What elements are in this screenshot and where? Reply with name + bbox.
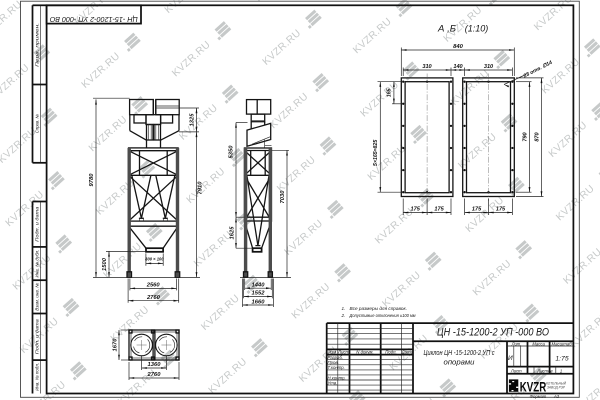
svg-text:Т.контр.: Т.контр. <box>328 365 345 370</box>
svg-text:1360: 1360 <box>148 362 162 368</box>
svg-text:140: 140 <box>453 64 463 70</box>
svg-text:Циклон ЦН -15-1200-2 УП с: Циклон ЦН -15-1200-2 УП с <box>424 348 495 357</box>
svg-text:KVZR: KVZR <box>520 379 547 394</box>
svg-text:5350: 5350 <box>229 145 235 159</box>
svg-text:1625: 1625 <box>230 226 236 240</box>
svg-text:Лит.: Лит. <box>511 341 522 346</box>
svg-text:Изм: Изм <box>328 349 336 354</box>
svg-text:175: 175 <box>472 207 482 213</box>
svg-text:(1:10): (1:10) <box>465 24 489 34</box>
svg-text:А3: А3 <box>553 394 560 399</box>
svg-text:Утв.: Утв. <box>328 381 338 386</box>
svg-text:1500: 1500 <box>102 257 108 271</box>
svg-text:1325: 1325 <box>189 113 195 127</box>
svg-text:165: 165 <box>387 88 393 97</box>
svg-text:310: 310 <box>422 64 432 70</box>
svg-text:Масса: Масса <box>532 341 545 346</box>
svg-text:1.: 1. <box>342 306 346 311</box>
svg-text:А ,Б: А ,Б <box>437 24 456 35</box>
svg-text:Справ. №: Справ. № <box>35 114 40 133</box>
svg-text:Подп. и дата: Подп. и дата <box>35 206 40 242</box>
svg-text:ЦН -15-1200-2 УП -000 ВО: ЦН -15-1200-2 УП -000 ВО <box>50 15 138 24</box>
svg-text:1552: 1552 <box>252 291 266 297</box>
svg-text:Инв. № подл.: Инв. № подл. <box>35 363 40 391</box>
svg-text:Масштаб: Масштаб <box>552 341 573 346</box>
svg-text:1660: 1660 <box>252 299 266 305</box>
svg-text:9780: 9780 <box>89 173 95 187</box>
svg-text:ЦН -15-1200-2 УП -000 ВО: ЦН -15-1200-2 УП -000 ВО <box>437 327 549 339</box>
svg-text:1670: 1670 <box>112 338 118 352</box>
svg-text:2760: 2760 <box>147 372 162 378</box>
svg-text:Формат: Формат <box>530 394 547 399</box>
svg-text:800 × 100: 800 × 100 <box>145 256 164 262</box>
svg-text:175: 175 <box>411 207 421 213</box>
svg-text:840: 840 <box>453 44 463 50</box>
svg-text:Подп. и дата: Подп. и дата <box>35 318 40 354</box>
svg-text:175: 175 <box>434 207 444 213</box>
svg-text:790: 790 <box>523 131 529 141</box>
svg-text:Допустимые отклонения ±100 мм: Допустимые отклонения ±100 мм <box>349 313 417 318</box>
svg-text:Перв. примен.: Перв. примен. <box>35 23 40 67</box>
svg-text:Подп.: Подп. <box>385 349 396 354</box>
svg-text:2.: 2. <box>341 313 346 318</box>
svg-text:1: 1 <box>560 368 562 373</box>
svg-text:опорами: опорами <box>444 357 476 366</box>
svg-text:Все размеры для справок.: Все размеры для справок. <box>350 306 408 311</box>
svg-text:И: И <box>508 355 513 362</box>
svg-text:1440: 1440 <box>252 282 266 288</box>
svg-text:2560: 2560 <box>146 283 161 289</box>
svg-text:Лист: Лист <box>510 368 522 373</box>
svg-text:Взам. инв. №: Взам. инв. № <box>35 282 40 310</box>
svg-text:Лист: Лист <box>337 349 349 354</box>
svg-text:5×165=825: 5×165=825 <box>373 140 379 166</box>
svg-text:870: 870 <box>535 131 541 141</box>
svg-text:Дата: Дата <box>401 349 414 354</box>
svg-text:Инв. № дубл.: Инв. № дубл. <box>35 250 40 278</box>
svg-text:2760: 2760 <box>146 295 161 301</box>
svg-text:N докум.: N докум. <box>356 349 373 354</box>
svg-text:310: 310 <box>484 64 494 70</box>
svg-text:Листов: Листов <box>536 368 553 373</box>
svg-text:7910: 7910 <box>198 181 204 195</box>
svg-text:1:75: 1:75 <box>555 356 568 363</box>
svg-text:7030: 7030 <box>280 190 286 204</box>
svg-text:175: 175 <box>496 207 506 213</box>
svg-text:ЗАВОД РЭР: ЗАВОД РЭР <box>547 386 566 390</box>
